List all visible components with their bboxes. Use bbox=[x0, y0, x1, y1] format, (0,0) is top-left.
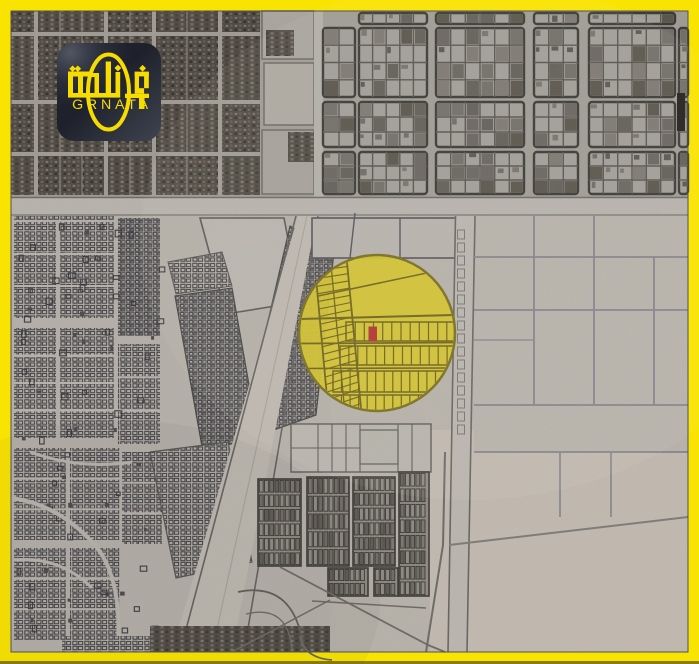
svg-text:GRNATA: GRNATA bbox=[72, 97, 152, 113]
